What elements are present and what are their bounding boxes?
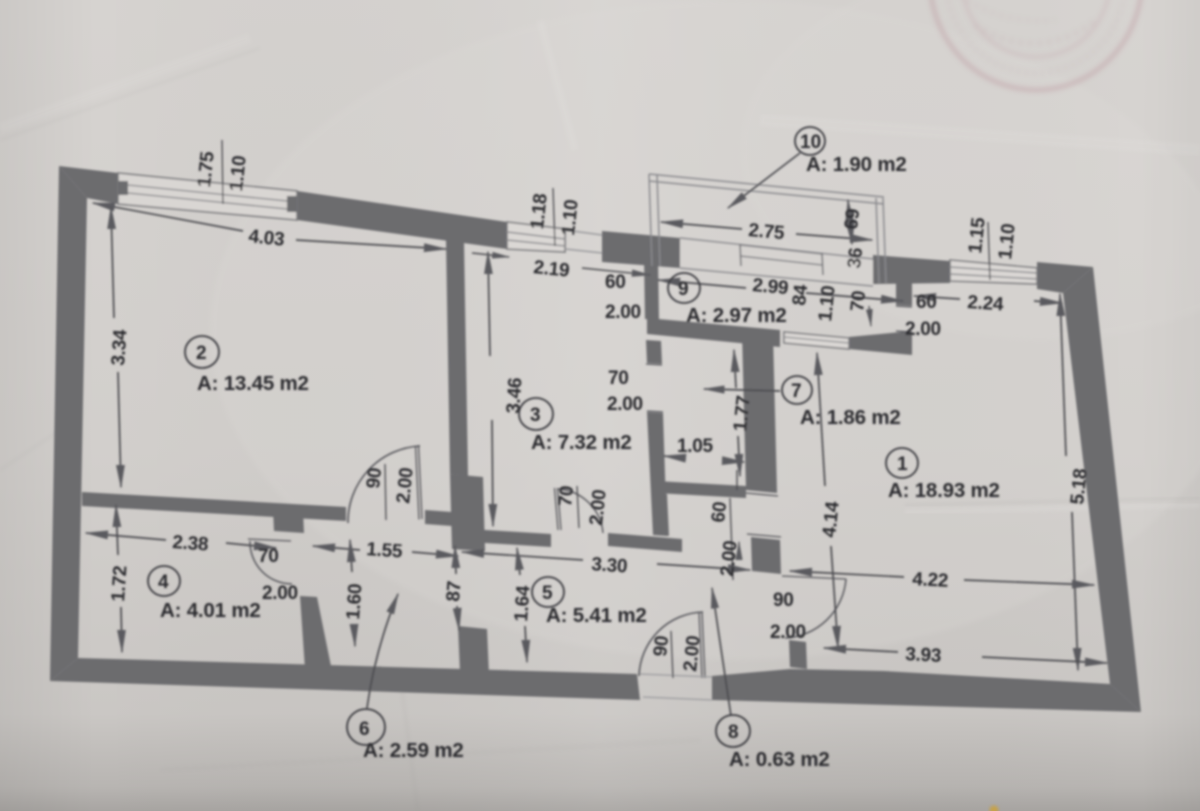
svg-text:2.00: 2.00 <box>770 622 806 643</box>
svg-text:2.00: 2.00 <box>717 540 742 578</box>
svg-text:5: 5 <box>542 583 553 604</box>
svg-text:1.55: 1.55 <box>366 539 404 562</box>
svg-text:3.93: 3.93 <box>905 644 942 667</box>
svg-text:1.64: 1.64 <box>511 584 534 622</box>
svg-text:70: 70 <box>608 368 629 389</box>
svg-text:2.00: 2.00 <box>586 489 611 527</box>
svg-text:3: 3 <box>530 405 541 426</box>
svg-text:1.60: 1.60 <box>343 583 366 620</box>
svg-text:8: 8 <box>728 722 739 743</box>
svg-text:2.99: 2.99 <box>752 275 789 299</box>
svg-text:60: 60 <box>916 292 937 313</box>
svg-text:1: 1 <box>897 454 908 475</box>
svg-text:1.10: 1.10 <box>558 199 583 237</box>
svg-text:7: 7 <box>791 381 802 402</box>
svg-text:5.18: 5.18 <box>1067 468 1092 506</box>
svg-text:9: 9 <box>678 279 689 300</box>
svg-text:2.00: 2.00 <box>262 583 298 604</box>
svg-text:87: 87 <box>443 580 465 602</box>
svg-text:A: 0.63 m2: A: 0.63 m2 <box>729 748 830 771</box>
svg-text:2.00: 2.00 <box>680 635 705 673</box>
svg-text:90: 90 <box>773 590 794 611</box>
svg-text:6: 6 <box>359 719 370 740</box>
svg-text:90: 90 <box>650 635 673 658</box>
svg-text:3.46: 3.46 <box>503 377 526 414</box>
svg-text:4.14: 4.14 <box>819 500 844 539</box>
svg-text:2.00: 2.00 <box>607 394 643 415</box>
svg-text:1.72: 1.72 <box>108 565 131 602</box>
svg-text:1.18: 1.18 <box>527 193 552 231</box>
svg-text:A: 2.97 m2: A: 2.97 m2 <box>686 304 787 327</box>
svg-text:60: 60 <box>605 272 626 293</box>
svg-text:A: 4.01 m2: A: 4.01 m2 <box>160 599 261 622</box>
svg-text:A: 13.45 m2: A: 13.45 m2 <box>197 372 309 395</box>
svg-text:84: 84 <box>789 283 812 306</box>
svg-text:1.10: 1.10 <box>815 285 840 323</box>
svg-text:A: 1.90 m2: A: 1.90 m2 <box>806 153 907 176</box>
svg-text:4.03: 4.03 <box>247 226 285 251</box>
svg-text:36: 36 <box>844 247 867 270</box>
svg-text:2: 2 <box>196 343 207 364</box>
svg-text:60: 60 <box>708 501 731 524</box>
svg-text:A: 7.32 m2: A: 7.32 m2 <box>531 431 632 454</box>
svg-text:2.24: 2.24 <box>967 292 1005 315</box>
svg-text:A: 5.41 m2: A: 5.41 m2 <box>546 604 647 627</box>
svg-text:70: 70 <box>258 546 279 567</box>
svg-text:A: 18.93 m2: A: 18.93 m2 <box>888 479 1000 502</box>
svg-text:90: 90 <box>363 467 386 490</box>
svg-text:4: 4 <box>158 572 169 593</box>
svg-text:1.05: 1.05 <box>677 436 714 457</box>
svg-text:70: 70 <box>555 485 578 508</box>
svg-text:70: 70 <box>847 290 870 313</box>
svg-text:2.75: 2.75 <box>748 220 786 244</box>
svg-text:1.75: 1.75 <box>194 150 219 189</box>
svg-text:A: 1.86 m2: A: 1.86 m2 <box>800 406 901 429</box>
svg-text:2.00: 2.00 <box>393 467 418 505</box>
svg-text:10: 10 <box>800 132 821 153</box>
svg-text:A: 2.59 m2: A: 2.59 m2 <box>363 739 464 762</box>
svg-text:69: 69 <box>841 208 864 231</box>
svg-text:1.10: 1.10 <box>995 223 1020 261</box>
svg-text:2.00: 2.00 <box>905 319 941 340</box>
svg-text:3.34: 3.34 <box>108 328 131 366</box>
svg-text:2.38: 2.38 <box>172 532 209 555</box>
svg-text:2.00: 2.00 <box>605 302 641 323</box>
svg-text:3.30: 3.30 <box>591 554 628 577</box>
svg-text:2.19: 2.19 <box>532 257 570 282</box>
svg-text:1.15: 1.15 <box>965 216 990 255</box>
svg-text:1.10: 1.10 <box>226 155 251 193</box>
svg-text:4.22: 4.22 <box>912 569 949 592</box>
svg-text:1.77: 1.77 <box>730 395 755 433</box>
